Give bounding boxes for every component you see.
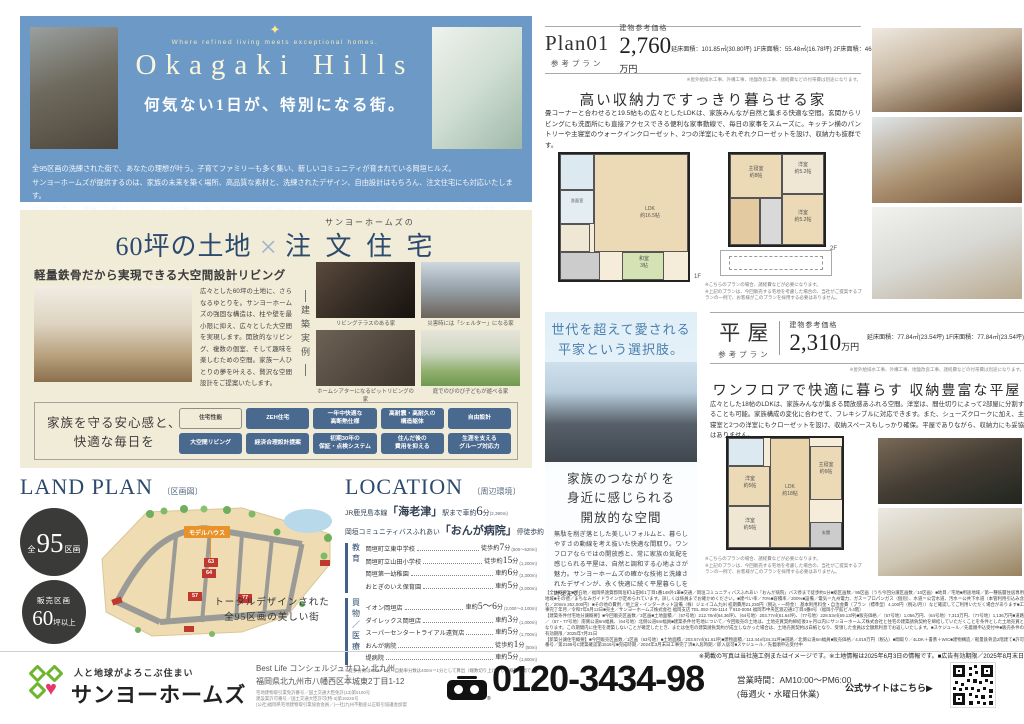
benefit-badge: 経済合理設計提案: [246, 433, 309, 454]
floor-label-2f: 2F: [830, 246, 837, 252]
location-group-shopping-medical: 買物／医療 イオン岡垣店車約5〜6分(2,000〜2,100m) ダイレックス岡…: [345, 598, 537, 665]
hiraya-header: 平 屋 参考プラン 建物参考価格 2,310万円 延床面積：77.84㎡(23.…: [710, 312, 1024, 364]
fine-print-line: 【全体概要】■所在地／福岡県遠賀郡岡垣町山田峠1丁目1番148外1筆■交通／岡垣…: [545, 590, 1024, 613]
location-item: 岡垣町立東中学校徒歩約7分(500〜520m): [366, 543, 538, 553]
benefit-badge: 一年中快適な 高断熱仕様: [313, 408, 376, 429]
lot-number: 63: [204, 558, 218, 567]
location-item: イオン岡垣店車約5〜6分(2,000〜2,100m): [366, 598, 538, 612]
benefit-badge: ZEH住宅: [246, 408, 309, 429]
benefit-badge: 高耐震・高耐久の 構造躯体: [381, 408, 444, 429]
hiraya-side-panel: 世代を超えて愛される 平家という選択肢。 家族のつながりを 身近に感じられる 開…: [545, 312, 697, 584]
hero-interior-photo: [30, 27, 118, 149]
land-plan-title: LAND PLAN: [20, 474, 153, 499]
benefit-badge: 大空間リビング: [179, 433, 242, 454]
divider: [305, 290, 306, 302]
plan01-body: 畳コーナーと合わせると19.5帖もの広々としたLDKは、家族みんなが自然と集まる…: [545, 109, 861, 152]
official-site-link[interactable]: 公式サイトはこちら▶: [845, 681, 933, 694]
living-room-photo: [34, 286, 192, 382]
home-theater-photo: [316, 330, 415, 386]
cross-icon: ×: [260, 229, 277, 264]
hiraya-living-photo: [878, 438, 1022, 504]
access-line: JR鹿児島本線「海老津」駅まで車約6分(2,390m): [345, 503, 537, 519]
hero-body-line: サンヨーホームズが提供するのは、家族の未来を築く場所、高品質な素材と、洗練された…: [32, 176, 522, 203]
phone-number[interactable]: 0120-3434-98: [492, 658, 704, 700]
logo-tagline: 人と地球がよろこぶ住まい: [74, 666, 194, 679]
freedial-icon: ®: [447, 676, 487, 702]
hiraya-side-headline: 家族のつながりを 身近に感じられる 開放的な空間: [545, 470, 697, 528]
qr-code[interactable]: [950, 662, 996, 708]
hero-family-photo: [432, 27, 522, 149]
office-address: 福岡県北九州市八幡西区本城東2丁目1-12: [256, 676, 451, 687]
price-value: 2,760: [619, 33, 671, 58]
land-plan-subtitle: 〔区画図〕: [163, 487, 203, 496]
plan01-balcony-outline: [720, 250, 832, 276]
group-label: 買物／医療: [351, 598, 362, 665]
plan01-note: ※こちらのプランの場合、諸経費などが必要になります。 ※上記のプランは、今回販売…: [705, 282, 863, 302]
plan01-washroom-photo: [872, 207, 1022, 299]
land-plan-caption: トータルデザインされた 全95区画の美しい街: [206, 596, 338, 626]
office-info: Best Life コンシェルジュサロン 北九州 福岡県北九州市八幡西区本城東2…: [256, 663, 451, 708]
plan01-type: 参考プラン: [545, 58, 609, 69]
divider: [345, 543, 348, 593]
benefit-badge: 自由設計: [448, 408, 511, 429]
fine-print: 【全体概要】■所在地／福岡県遠賀郡岡垣町山田峠1丁目1番148外1筆■交通／岡垣…: [545, 590, 1024, 660]
land-plan-section: LAND PLAN 〔区画図〕 全95区画 販売区画 60坪以上: [20, 474, 338, 648]
benefit-badge: 住宅性能: [179, 408, 242, 429]
location-item: ダイレックス岡垣店車約3分(1,000m): [366, 615, 538, 625]
hero-tagline: Where refined living meets exceptional h…: [120, 39, 430, 46]
hiraya-floorplan: LDK 約18帖 主寝室 約6帖 洋室 約5帖 洋室 約5帖 玄関: [726, 436, 844, 550]
price-label: 建物参考価格: [789, 320, 866, 330]
fine-print-line: 【建築条件付宅地分譲概要】■今回販売区画数／3区画■土地面積／（57号地）212…: [545, 613, 1024, 636]
location-item: 岡垣町立山田小学校徒歩約15分(1,200m): [366, 556, 538, 566]
photo-caption: ホームシアターになるピットリビングの家: [316, 387, 415, 403]
plan01-name: Plan01: [545, 31, 609, 56]
company-name: サンヨーホームズ: [71, 679, 246, 709]
location-subtitle: 〔周辺環境〕: [472, 487, 520, 496]
hero-title: Okagaki Hills: [120, 49, 430, 82]
hiraya-plan-note: ※こちらのプランの場合、諸経費などが必要になります。 ※上記のプランは、今回販売…: [705, 556, 863, 576]
location-item: 岡垣第一幼稚園車約6分(2,300m): [366, 568, 538, 578]
divider: [305, 364, 306, 376]
examples-vertical-label: 建築実例: [299, 290, 312, 382]
photo-caption: 災害時には「シェルター」になる家: [421, 319, 520, 327]
photo-caption: リビングテラスのある家: [316, 319, 415, 327]
photo-caption: 庭でのびのび子どもが遊べる家: [421, 387, 520, 395]
hero-section: ✦ Where refined living meets exceptional…: [20, 16, 532, 202]
model-house-label: モデルハウス: [184, 526, 230, 538]
price-unit: 万円: [619, 64, 637, 74]
benefits-lead: 家族を守る安心感と、 快適な毎日を: [47, 414, 182, 452]
hiraya-price-note: ※屋外給排水工事、外構工事、地盤改良工事、諸経費などの付帯費は別途になります。: [710, 367, 1024, 373]
heart-icon: ♥: [45, 678, 57, 701]
feature-heading: 軽量鉄骨だから実現できる大空間設計リビング: [34, 267, 286, 283]
group-label: 教育: [351, 543, 362, 593]
hiraya-name: 平 屋: [710, 317, 779, 347]
benefits-box: 家族を守る安心感と、 快適な毎日を 住宅性能 ZEH住宅 一年中快適な 高断熱仕…: [34, 402, 518, 460]
fine-print-line: 【新築分譲住宅概要】■今回販売区画数／1区画（63号地）■土地面積／203.67…: [545, 637, 1024, 649]
total-lots-badge: 全95区画: [20, 508, 88, 576]
hiraya-type: 参考プラン: [710, 349, 779, 360]
location-item: おとぎのいえ保育園車約5分(2,000m): [366, 581, 538, 591]
plan01-floorplan-2f: 主寝室 約8帖 洋室 約5.2帖 洋室 約5.2帖: [728, 152, 826, 247]
business-hours: 営業時間：AM10:00～PM6:00 (毎週火・水曜日休業): [737, 674, 851, 701]
divider: [345, 598, 348, 665]
title-land: 60坪の土地: [115, 232, 251, 261]
title-home: 注 文 住 宅: [285, 232, 437, 261]
price-value: 2,310: [789, 330, 841, 355]
footer-divider: [0, 651, 1024, 652]
hiraya-dining-photo: [878, 508, 1022, 576]
sparkle-icon: ✦: [120, 22, 430, 38]
shelter-house-photo: [421, 262, 520, 318]
access-line: 岡垣コミュニティバスふれあい「おんが病院」停徒歩約1分(40m): [345, 522, 537, 538]
custom-home-title: 60坪の土地×注 文 住 宅: [20, 226, 532, 265]
benefit-badge: 生涯を支える グループ対応力: [448, 433, 511, 454]
plan01-floorplan-1f: LDK 約16.5帖 和室 3帖 洗面室: [558, 152, 690, 282]
plan01-living-photo: [872, 28, 1022, 112]
hero-body-line: 全95区画の洗練された街で、あなたの理想が叶う。子育てファミリーも多く集い、新し…: [32, 162, 522, 176]
lot-number: 57: [188, 592, 202, 601]
location-item: スーパーセンタートライアル遠賀店車約5分(1,700m): [366, 627, 538, 637]
price-unit: 万円: [841, 342, 859, 352]
benefit-badge: 初期30年の 保証・点検システム: [313, 433, 376, 454]
office-name: Best Life コンシェルジュサロン 北九州: [256, 663, 451, 674]
custom-home-section: サンヨーホームズの 60坪の土地×注 文 住 宅 軽量鉄骨だから実現できる大空間…: [20, 210, 532, 468]
terrace-house-photo: [316, 262, 415, 318]
location-section: LOCATION 〔周辺環境〕 JR鹿児島本線「海老津」駅まで車約6分(2,39…: [345, 474, 537, 650]
plan01-terrace-photo: [872, 117, 1022, 203]
lot-number: 64: [202, 569, 216, 578]
divider: [779, 321, 780, 355]
hiraya-areas: 延床面積：77.84㎡(23.54坪) 1F床面積：77.84㎡(23.54坪): [867, 333, 1024, 343]
hero-subtitle: 何気ない1日が、特別になる街。: [120, 93, 430, 115]
location-group-education: 教育 岡垣町立東中学校徒歩約7分(500〜520m) 岡垣町立山田小学校徒歩約1…: [345, 543, 537, 593]
flyer-page: ✦ Where refined living meets exceptional…: [0, 0, 1024, 724]
floor-label-1f: 1F: [694, 274, 701, 280]
garden-house-photo: [421, 330, 520, 386]
feature-body: 広々とした60坪の土地に、さらなるゆとりを。サンヨーホームズの強固な構造は、柱や…: [200, 286, 292, 390]
hiraya-exterior-photo: [545, 362, 697, 462]
lot-size-badge: 販売区画 60坪以上: [22, 580, 86, 644]
benefit-badge: 住んだ後の 費用を抑える: [381, 433, 444, 454]
location-title: LOCATION: [345, 474, 463, 499]
location-item: おんが病院徒歩約1分(50m): [366, 640, 538, 650]
model-house-pointer: [210, 536, 211, 558]
price-label: 建物参考価格: [619, 23, 671, 33]
plan01-header: Plan01 参考プラン 建物参考価格 2,760万円 延床面積：101.85㎡…: [545, 26, 861, 74]
plan01-headline: 高い収納力ですっきり暮らせる家: [545, 89, 861, 110]
plan01-price-note: ※屋外給排水工事、外構工事、地盤改良工事、諸経費などの付帯費は別途になります。: [545, 77, 861, 83]
sanyo-homes-logo-icon: ♥: [28, 666, 66, 706]
hiraya-headline: ワンフロアで快適に暮らす 収納豊富な平屋: [710, 380, 1024, 400]
license-lines: 宅地建物取引業免許番号／国土交通大臣免許(13)第6100号 建設業許可番号／国…: [256, 690, 451, 708]
hiraya-side-title: 世代を超えて愛される 平家という選択肢。: [545, 320, 697, 360]
